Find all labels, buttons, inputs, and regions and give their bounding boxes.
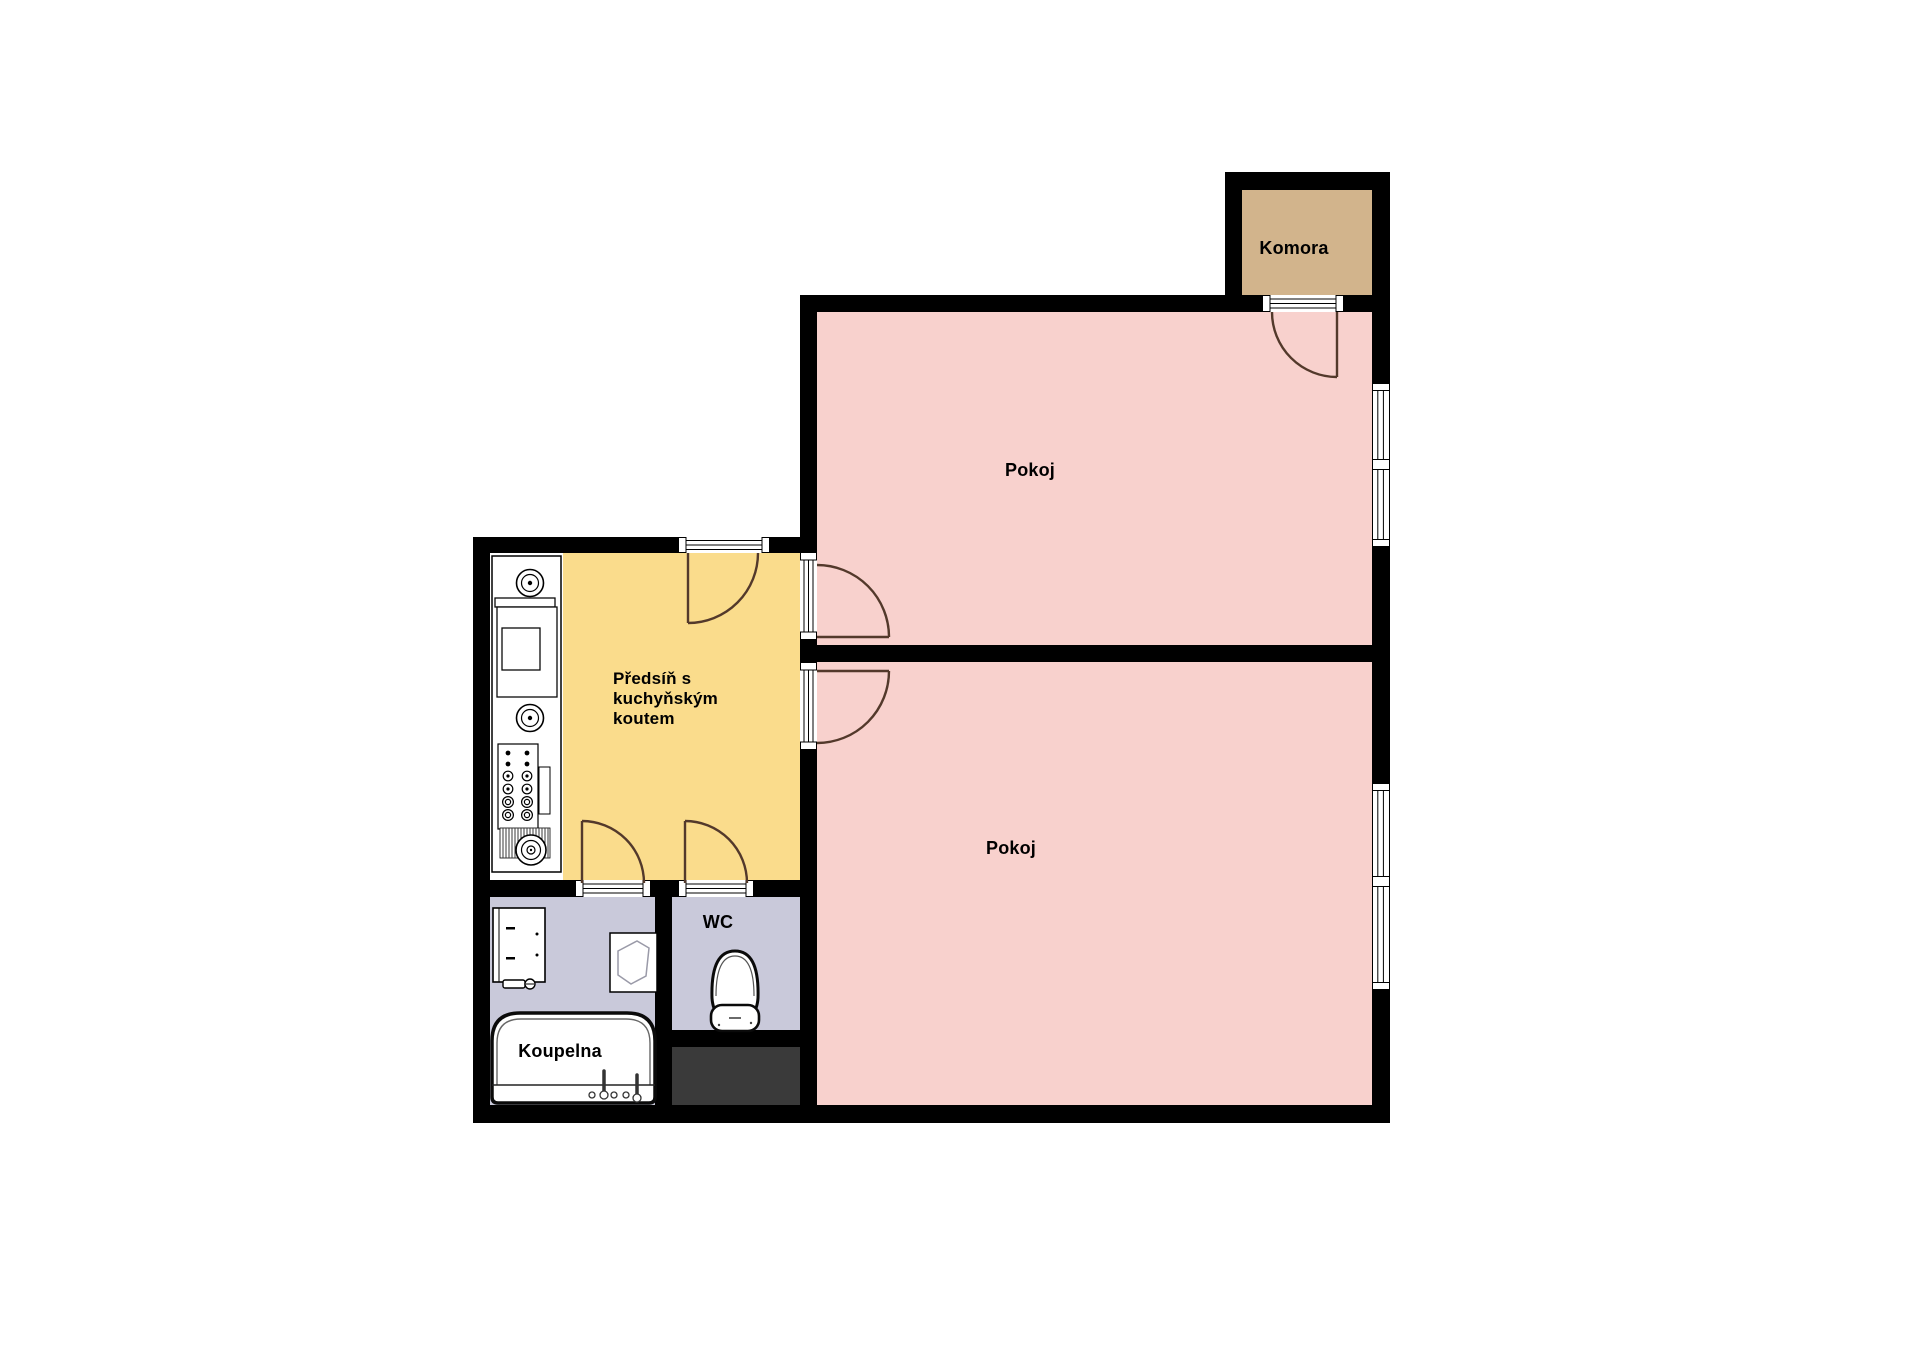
window-top-pokoj xyxy=(1373,384,1390,547)
wall-bath-wc-divider xyxy=(655,897,672,1105)
room-koupelna xyxy=(490,897,655,1105)
wall-hall-pokoj-lower xyxy=(800,750,817,1105)
wall-hall-pokoj-upper xyxy=(800,295,817,553)
label-predsin: Předsíň s kuchyňským koutem xyxy=(613,669,719,729)
wall-komora-bottom-left xyxy=(1242,295,1262,312)
wall-hall-pokoj-mid xyxy=(800,640,817,663)
wall-right-upper xyxy=(1372,172,1390,383)
wall-kitchen-bottom-mid xyxy=(651,880,678,897)
label-komora: Komora xyxy=(1234,238,1354,258)
installation-shaft xyxy=(672,1047,800,1105)
wall-right-middle xyxy=(1372,547,1390,783)
wall-komora-top xyxy=(1225,172,1390,190)
label-pokoj-bottom: Pokoj xyxy=(961,838,1061,858)
room-pokoj-top xyxy=(817,312,1372,645)
kitchen-counter-zone xyxy=(490,553,563,880)
wall-komora-bottom-right xyxy=(1344,295,1372,312)
wall-pokoj-divider xyxy=(817,645,1372,662)
wall-shaft-top xyxy=(672,1030,800,1047)
room-pokoj-bottom xyxy=(817,662,1372,1105)
wall-bottom xyxy=(473,1105,1390,1123)
label-pokoj-top: Pokoj xyxy=(980,460,1080,480)
label-wc: WC xyxy=(688,912,748,932)
wall-right-lower xyxy=(1372,990,1390,1123)
wall-kitchen-bottom-left xyxy=(488,880,575,897)
label-koupelna: Koupelna xyxy=(505,1041,615,1061)
window-bottom-pokoj xyxy=(1373,784,1390,990)
wall-pokoj-top xyxy=(800,295,1242,312)
wall-kitchen-top-left xyxy=(473,537,678,553)
wall-kitchen-bottom-right xyxy=(754,880,817,897)
wall-left xyxy=(473,537,490,1123)
floor-plan: Komora Pokoj Pokoj Předsíň s kuchyňským … xyxy=(0,0,1920,1358)
